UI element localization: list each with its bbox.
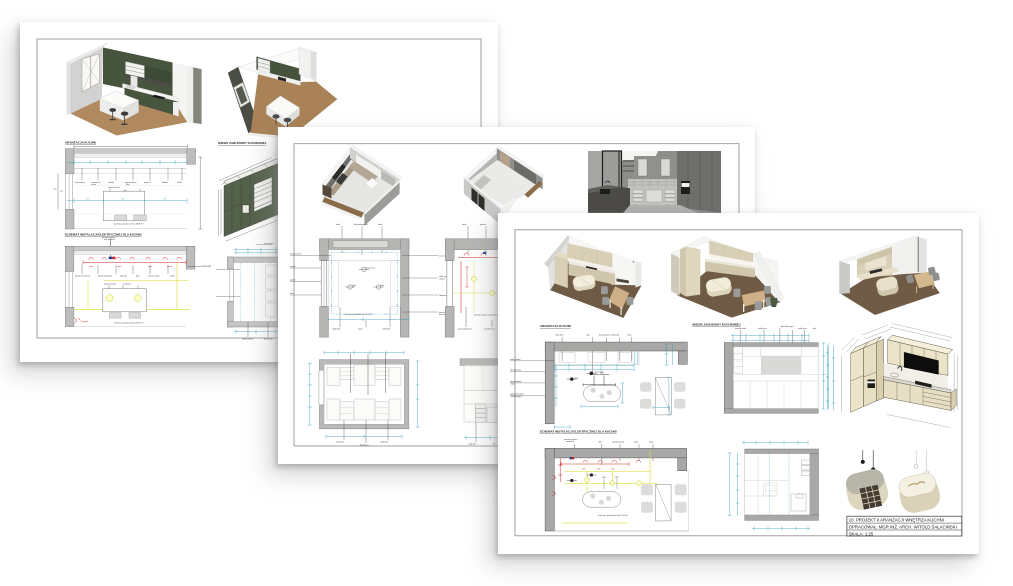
svg-text:SCHEMAT INSTALACJI ELEKTRYCZNE: SCHEMAT INSTALACJI ELEKTRYCZNEJ DLA KUCH… <box>65 233 142 237</box>
svg-text:szuflady: szuflady <box>108 182 114 184</box>
svg-text:lampa: lampa <box>634 442 638 444</box>
svg-text:szafki dolne: szafki dolne <box>332 329 341 331</box>
svg-text:oswietlenie: oswietlenie <box>123 283 131 286</box>
svg-text:przewod zasilajacy: przewod zasilajacy <box>564 439 578 441</box>
svg-text:kuchnia powierzchnia 11,0 m²: kuchnia powierzchnia 11,0 m² <box>345 313 372 316</box>
svg-text:230V: 230V <box>602 477 606 479</box>
svg-text:grzejnik: grzejnik <box>290 280 296 282</box>
svg-text:okap: okap <box>590 373 593 375</box>
svg-text:polki: polki <box>813 328 817 330</box>
svg-text:wylacznik swiatla: wylacznik swiatla <box>612 441 624 444</box>
svg-text:okno drewniane: okno drewniane <box>510 370 521 372</box>
svg-text:wylacznik: wylacznik <box>120 276 127 278</box>
svg-text:grzejnik plytowy: grzejnik plytowy <box>510 380 521 383</box>
svg-text:przewod: przewod <box>480 224 486 226</box>
svg-text:OPRACOWAŁ: MGR INŻ. ARCH. WITO: OPRACOWAŁ: MGR INŻ. ARCH. WITOLD ŚAŁACIŃ… <box>849 524 957 529</box>
svg-text:wyspa kuchenna: wyspa kuchenna <box>108 187 120 189</box>
svg-text:lampa: lampa <box>649 442 653 444</box>
svg-text:gniazdo hermetyczne: gniazdo hermetyczne <box>75 275 90 278</box>
svg-text:zlewozmywak z szafka: zlewozmywak z szafka <box>599 335 615 337</box>
svg-text:bialy: bialy <box>511 383 514 385</box>
svg-text:lampa: lampa <box>117 266 121 268</box>
svg-text:Legenda: Legenda <box>81 321 88 323</box>
svg-text:blat roboczy: blat roboczy <box>360 444 369 447</box>
svg-text:oswietlenie led: oswietlenie led <box>484 328 495 331</box>
svg-text:szafki dolne: szafki dolne <box>336 442 345 444</box>
svg-text:SKALA: 1:25: SKALA: 1:25 <box>849 531 874 536</box>
svg-text:plyta: plyta <box>136 275 139 278</box>
svg-text:230V: 230V <box>600 373 604 375</box>
svg-text:okap: okap <box>126 184 130 186</box>
svg-text:gniazdo elektryczne: gniazdo elektryczne <box>98 275 112 278</box>
svg-text:117: 117 <box>86 199 90 201</box>
svg-text:wlacznik swiatla: wlacznik swiatla <box>148 275 159 278</box>
svg-text:kuchnia: powierzchnia 18,9 m²: kuchnia: powierzchnia 18,9 m² <box>114 322 144 325</box>
svg-text:okno drewniane: okno drewniane <box>290 254 301 256</box>
svg-text:blat: blat <box>493 443 496 446</box>
svg-text:230V: 230V <box>611 469 615 471</box>
svg-text:parapet: parapet <box>290 265 296 268</box>
svg-text:gniazdo: gniazdo <box>167 266 172 268</box>
svg-text:zmywarka do: zmywarka do <box>91 182 101 184</box>
svg-text:lampa: lampa <box>352 285 356 287</box>
svg-text:piekarnik: piekarnik <box>144 182 151 184</box>
svg-text:szafka: szafka <box>170 276 175 278</box>
svg-text:naczyn: naczyn <box>91 184 96 186</box>
svg-text:szafki dolne: szafki dolne <box>468 444 477 446</box>
svg-text:szafki kuchenne: szafki kuchenne <box>242 339 254 341</box>
svg-text:WYLACZNIK: WYLACZNIK <box>202 265 212 268</box>
svg-text:okap: okap <box>586 335 590 337</box>
svg-text:WIDOK ZABUDOWY KUCHENNEJ: WIDOK ZABUDOWY KUCHENNEJ <box>692 323 741 327</box>
svg-text:przewod zasilajacy: przewod zasilajacy <box>102 237 116 239</box>
svg-text:szafki z blatem: szafki z blatem <box>510 358 521 361</box>
svg-text:10. PROJEKT II ARANŻACJI WNĘTR: 10. PROJEKT II ARANŻACJI WNĘTRZA KUCHNI <box>849 518 944 523</box>
svg-text:kuchnia: powierzchnia 17,3 m²: kuchnia: powierzchnia 17,3 m² <box>598 514 628 517</box>
svg-text:szafki dolne: szafki dolne <box>382 329 391 331</box>
svg-text:lampa: lampa <box>89 266 93 268</box>
svg-text:wieszaki szafek: wieszaki szafek <box>735 328 746 330</box>
svg-text:szafki dolne: szafki dolne <box>555 335 564 337</box>
svg-text:lampa: lampa <box>574 377 578 379</box>
svg-text:szafka: szafka <box>177 182 182 184</box>
svg-text:95: 95 <box>61 191 64 193</box>
svg-text:ARANŻACJA KUCHNI: ARANŻACJA KUCHNI <box>65 140 96 145</box>
svg-text:lampa: lampa <box>462 224 466 226</box>
svg-text:lodowka: lodowka <box>162 182 168 184</box>
svg-text:230V: 230V <box>615 477 619 479</box>
svg-text:lampa wiszaca: lampa wiszaca <box>366 268 376 270</box>
svg-text:okap: okap <box>598 442 602 444</box>
svg-text:plyta indukcyjna: plyta indukcyjna <box>125 181 136 184</box>
svg-text:szafki: szafki <box>627 335 632 337</box>
svg-text:kuchnia: powierzchnia 18,9 m²: kuchnia: powierzchnia 18,9 m² <box>114 222 144 225</box>
svg-text:szafki: szafki <box>615 335 620 337</box>
svg-text:ARANŻACJA KUCHNI: ARANŻACJA KUCHNI <box>540 323 571 328</box>
svg-text:172: 172 <box>163 199 167 201</box>
svg-text:wyspa kuchenna: wyspa kuchenna <box>104 284 116 286</box>
svg-text:SCHEMAT INSTALACJI ELEKTRYCZNE: SCHEMAT INSTALACJI ELEKTRYCZNEJ DLA KUCH… <box>540 430 617 434</box>
svg-text:szafki dolne: szafki dolne <box>380 442 389 444</box>
svg-text:lampa: lampa <box>380 285 384 287</box>
svg-text:zlewozmywak: zlewozmywak <box>75 182 85 184</box>
svg-text:drzwi: drzwi <box>290 293 294 295</box>
svg-text:WIDOK ZABUDOWY KUCHENNEJ: WIDOK ZABUDOWY KUCHENNEJ <box>218 141 267 145</box>
svg-text:120: 120 <box>53 189 57 191</box>
svg-text:okap kuchenny: okap kuchenny <box>104 239 115 241</box>
svg-text:szafki gorne: szafki gorne <box>798 328 807 330</box>
svg-text:230V: 230V <box>597 469 601 471</box>
svg-text:szafki: szafki <box>378 224 383 226</box>
svg-text:230V: 230V <box>582 469 586 471</box>
svg-text:szer. wnetrza: szer. wnetrza <box>264 242 274 245</box>
svg-text:wyspa: wyspa <box>358 329 363 331</box>
svg-text:szafki gorne: szafki gorne <box>758 328 767 330</box>
svg-text:gniazda elektryczne: gniazda elektryczne <box>458 328 472 331</box>
svg-text:plyta dekoracyjna: plyta dekoracyjna <box>781 325 794 328</box>
svg-text:szafki: szafki <box>336 224 341 226</box>
svg-text:wyjscie przewodow: wyjscie przewodow <box>510 394 524 396</box>
